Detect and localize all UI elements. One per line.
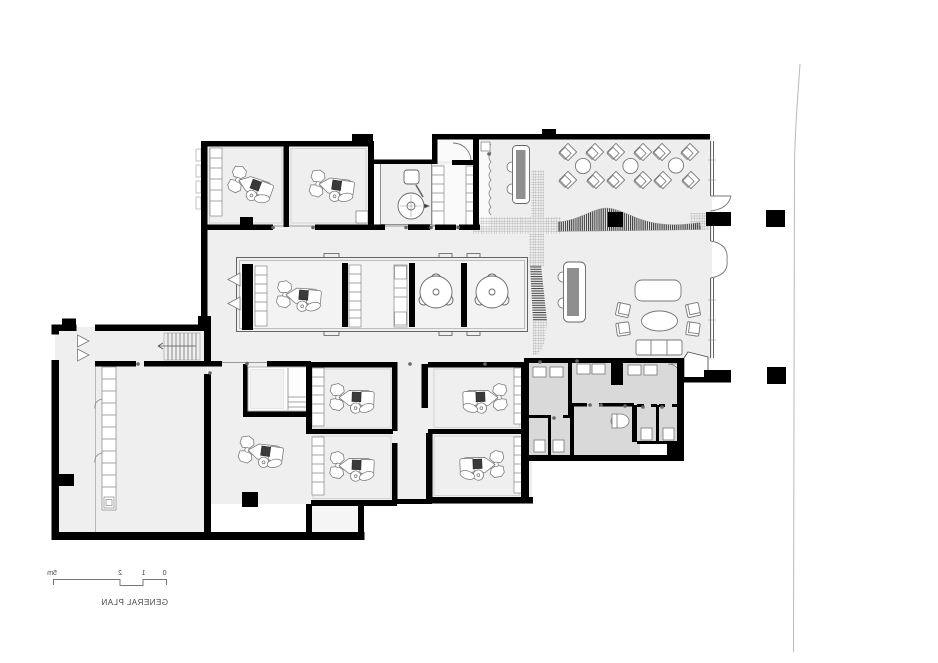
svg-text:GENERAL PLAN: GENERAL PLAN [101,598,168,607]
svg-text:2: 2 [118,570,122,577]
svg-text:0: 0 [162,570,166,577]
svg-text:1: 1 [141,570,145,577]
svg-text:5m: 5m [47,570,57,577]
